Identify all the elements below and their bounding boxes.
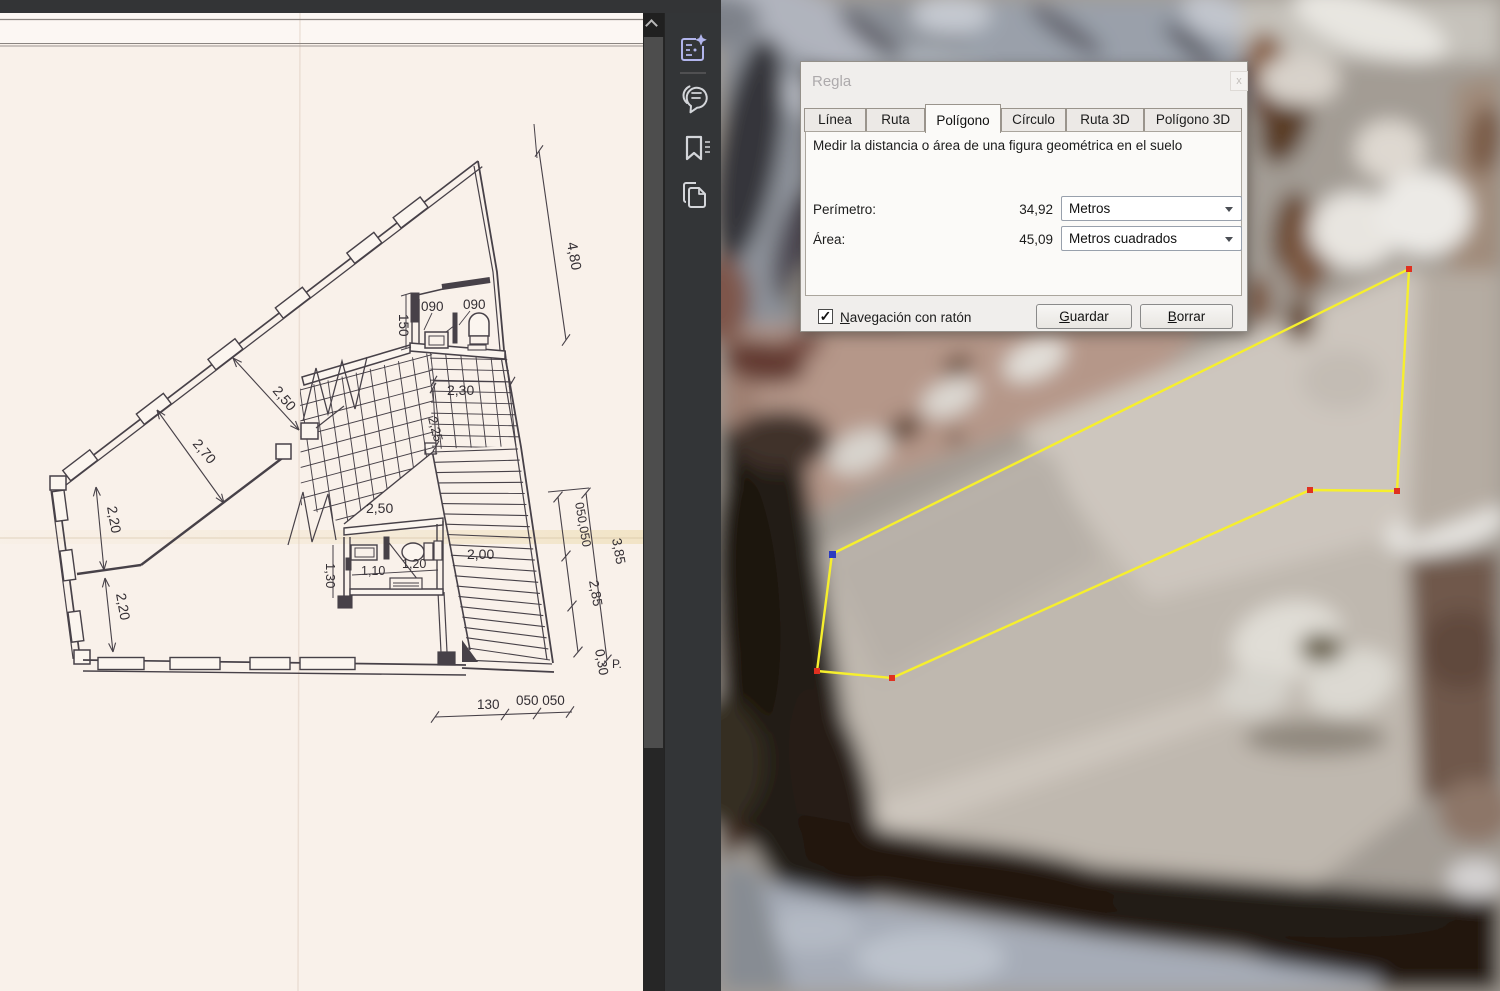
svg-text:P.: P. (612, 657, 622, 671)
svg-text:090: 090 (463, 297, 486, 312)
svg-text:130: 130 (477, 697, 500, 712)
svg-text:2,50: 2,50 (366, 500, 393, 516)
svg-text:1,10: 1,10 (361, 564, 385, 578)
svg-text:2,30: 2,30 (447, 382, 474, 398)
svg-text:050 050: 050 050 (516, 693, 565, 708)
svg-text:090: 090 (421, 299, 444, 314)
svg-text:1,30: 1,30 (323, 563, 338, 588)
svg-text:2,00: 2,00 (467, 546, 494, 562)
svg-text:150: 150 (396, 314, 411, 337)
svg-text:1,20: 1,20 (402, 557, 426, 571)
